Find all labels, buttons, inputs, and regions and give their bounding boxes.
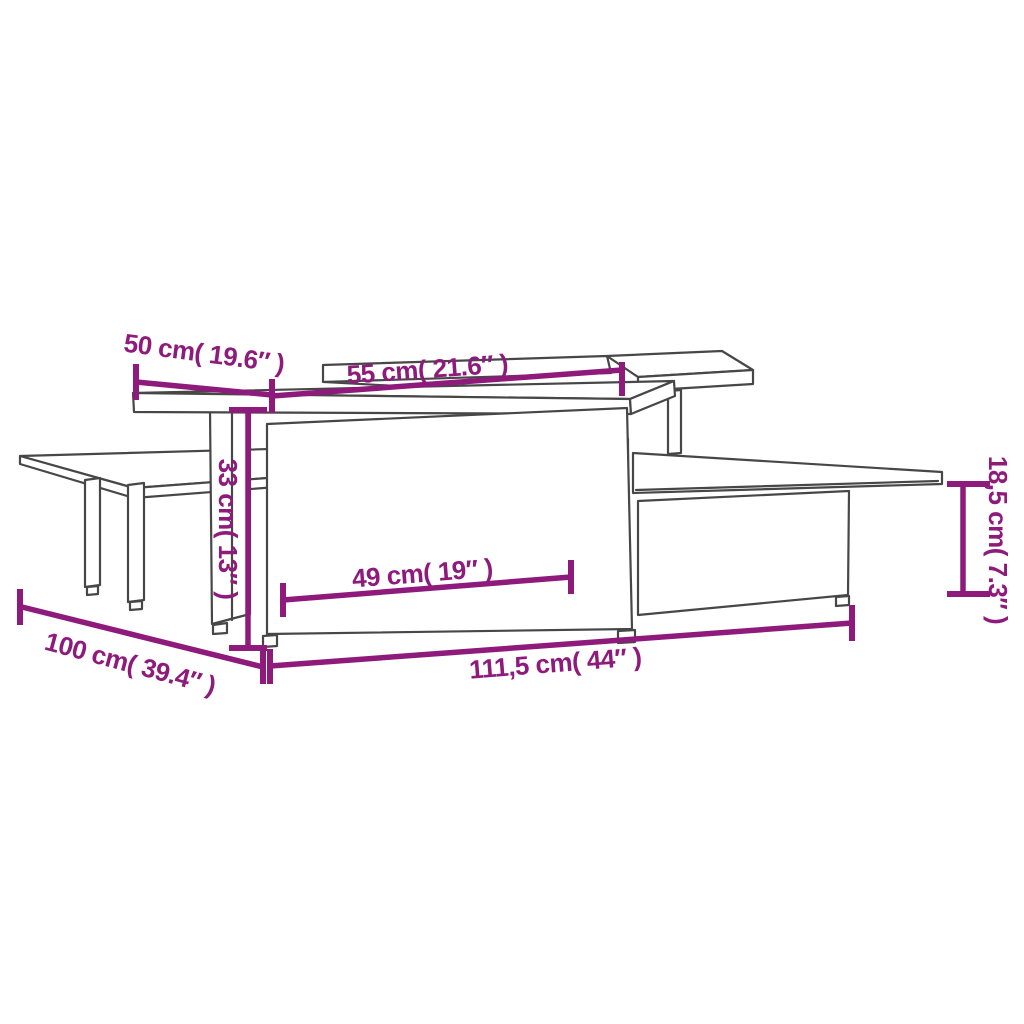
right-lower-tabletop [633,453,942,493]
left-leg-foot-1 [87,586,98,595]
short-table-top-support [668,390,681,454]
main-front-panel [267,408,632,634]
furniture-outline [20,351,942,647]
dimension-height-low: 18,5 cm( 7.3″ ) [947,456,1013,624]
left-leg-panel-1 [85,478,100,587]
dimension-label-top-depth: 50 cm( 19.6″ ) [122,328,286,379]
center-support-foot [213,623,227,634]
dimension-label-total-depth: 100 cm( 39.4″ ) [42,626,219,700]
dimension-label-height-low: 18,5 cm( 7.3″ ) [983,456,1013,624]
product-dimension-image: 50 cm( 19.6″ ) 55 cm( 21.6″ ) 33 cm( 13″… [0,0,1024,1024]
dimension-label-height-tall: 33 cm( 13″ ) [213,459,243,600]
right-base-cabinet [638,491,849,615]
furniture-dimension-diagram: 50 cm( 19.6″ ) 55 cm( 21.6″ ) 33 cm( 13″… [0,0,1024,1024]
right-base-foot [836,596,849,606]
dimension-label-top-width: 55 cm( 21.6″ ) [346,348,509,390]
left-leg-foot-2 [130,601,142,610]
left-leg-panel-2 [128,483,144,602]
